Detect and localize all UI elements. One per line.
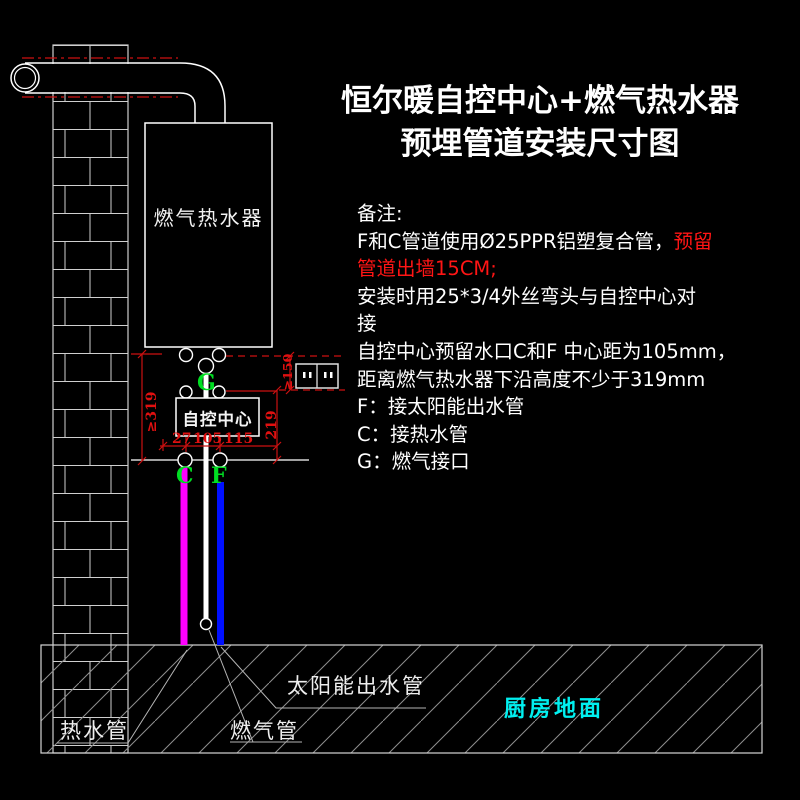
notes-line-4: 接 — [357, 310, 736, 338]
notes-line-3: 安装时用25*3/4外丝弯头与自控中心对 — [357, 283, 736, 311]
notes-block: 备注: F和C管道使用Ø25PPR铝塑复合管，预留 管道出墙15CM; 安装时用… — [357, 200, 736, 476]
port-letter-f: F — [211, 463, 227, 489]
port-letter-g: G — [197, 370, 216, 396]
notes-line-1-red: 预留 — [674, 230, 713, 253]
hot-water-pipe — [181, 467, 188, 645]
drawing-title-line1: 恒尔暖自控中心+燃气热水器 — [330, 80, 750, 123]
dim-115-label: 115 — [224, 431, 253, 447]
notes-line-6: 距离燃气热水器下沿高度不少于319mm — [357, 366, 736, 394]
dim-219-label: 219 — [264, 400, 280, 450]
solar-pipe — [217, 482, 224, 645]
control-center-label: 自控中心 — [176, 406, 259, 430]
dim-150-label: ≥150 — [280, 350, 296, 394]
solar-pipe-label: 太阳能出水管 — [287, 670, 425, 700]
dim-319-label: ≥319 — [144, 387, 160, 437]
water-heater-box — [145, 123, 272, 347]
notes-heading: 备注: — [357, 200, 736, 228]
water-heater-label: 燃气热水器 — [145, 202, 272, 231]
dim-105-label: 105 — [193, 431, 222, 447]
dim-27-label: 27 — [172, 431, 191, 447]
kitchen-floor-label: 厨房地面 — [504, 691, 604, 723]
gas-pipe-end-circle — [201, 619, 212, 630]
notes-line-5: 自控中心预留水口C和F 中心距为105mm， — [357, 338, 736, 366]
cad-drawing: 恒尔暖自控中心+燃气热水器 预埋管道安装尺寸图 备注: F和C管道使用Ø25PP… — [0, 0, 800, 800]
drawing-title-line2: 预埋管道安装尺寸图 — [330, 123, 750, 166]
notes-line-8: C：接热水管 — [357, 421, 736, 449]
power-outlet-icon — [296, 364, 338, 388]
notes-line-1: F和C管道使用Ø25PPR铝塑复合管，预留 — [357, 228, 736, 256]
notes-line-2: 管道出墙15CM; — [357, 255, 736, 283]
notes-line-7: F：接太阳能出水管 — [357, 393, 736, 421]
hot-water-pipe-label: 热水管 — [60, 715, 129, 745]
gas-pipe-label: 燃气管 — [230, 715, 299, 745]
notes-line-9: G：燃气接口 — [357, 448, 736, 476]
port-letter-c: C — [176, 463, 194, 489]
drawing-title: 恒尔暖自控中心+燃气热水器 预埋管道安装尺寸图 — [330, 80, 750, 166]
